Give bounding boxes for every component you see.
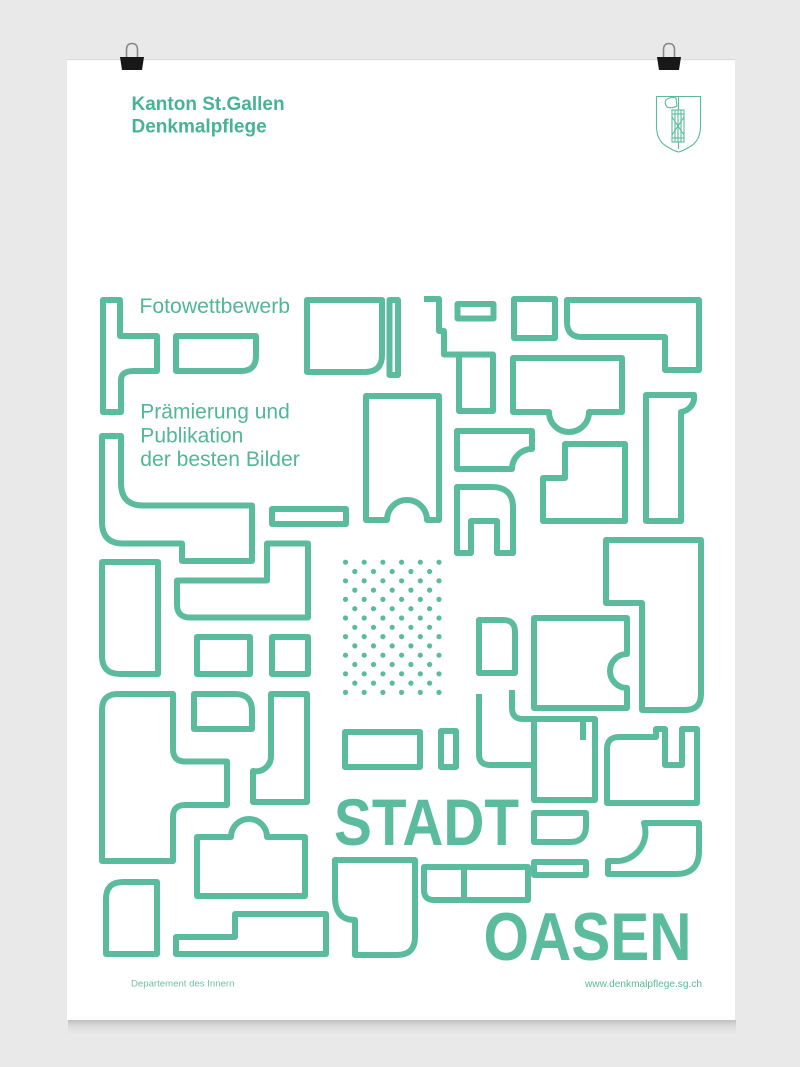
svg-text:Kanton St.Gallen: Kanton St.Gallen <box>132 94 285 115</box>
svg-text:Publikation: Publikation <box>140 423 243 447</box>
svg-text:www.denkmalpflege.sg.ch: www.denkmalpflege.sg.ch <box>584 979 702 990</box>
svg-text:der besten Bilder: der besten Bilder <box>140 447 299 471</box>
svg-text:Denkmalpflege: Denkmalpflege <box>132 116 267 137</box>
svg-text:Prämierung und: Prämierung und <box>140 400 289 424</box>
svg-text:Departement des Innern: Departement des Innern <box>131 979 234 990</box>
svg-text:OASEN: OASEN <box>484 899 692 975</box>
svg-text:Fotowettbewerb: Fotowettbewerb <box>140 294 291 318</box>
svg-text:STADT: STADT <box>334 785 519 859</box>
